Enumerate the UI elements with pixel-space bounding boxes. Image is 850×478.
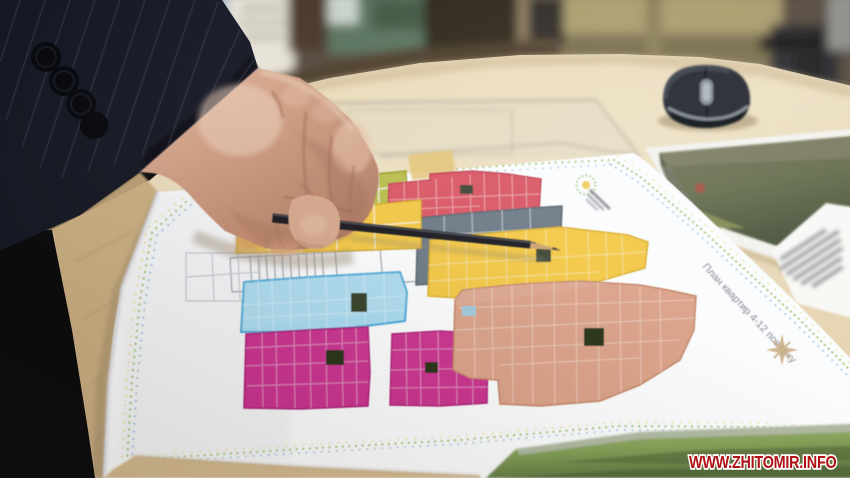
- svg-text:WWW.ZHITOMIR.INFO: WWW.ZHITOMIR.INFO: [689, 453, 836, 473]
